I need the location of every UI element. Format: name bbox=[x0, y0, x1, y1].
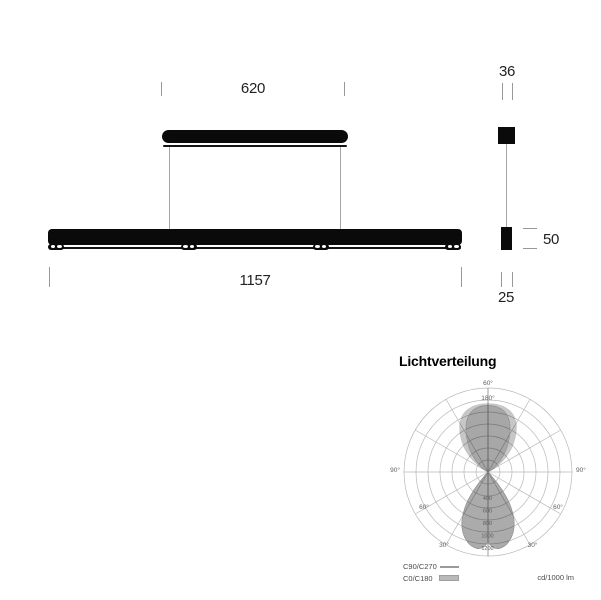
angle-label-60-left: 60° bbox=[419, 503, 429, 511]
dim-tick bbox=[461, 267, 462, 287]
angle-label-30-right: 30° bbox=[528, 541, 538, 549]
angle-label-top-outer: 60° bbox=[483, 379, 493, 387]
ring-label: 1000 bbox=[481, 534, 493, 540]
led-dot bbox=[315, 245, 320, 248]
led-spot bbox=[181, 244, 197, 251]
dim-tick bbox=[512, 272, 513, 288]
technical-drawing-page: 620 1157 36 50 25 Lichtverteilung bbox=[0, 0, 601, 600]
side-suspension-cable bbox=[506, 144, 507, 228]
dim-tick bbox=[161, 82, 162, 96]
dim-tick bbox=[344, 82, 345, 96]
dim-tick bbox=[523, 248, 537, 249]
dim-tick bbox=[501, 272, 502, 288]
angle-label-90-left: 90° bbox=[390, 466, 400, 474]
ring-label: 400 bbox=[483, 496, 492, 502]
led-dot bbox=[448, 245, 453, 248]
dim-label-canopy-width: 620 bbox=[223, 80, 283, 97]
dim-tick bbox=[512, 83, 513, 100]
dim-tick bbox=[49, 267, 50, 287]
ring-label: 800 bbox=[483, 521, 492, 527]
angle-label-180: 180° bbox=[481, 394, 495, 402]
led-dot bbox=[183, 245, 188, 248]
led-dot bbox=[322, 245, 327, 248]
legend-c0-label: C0/C180 bbox=[403, 574, 433, 583]
led-spot bbox=[445, 244, 461, 251]
fixture-bar-lower-edge bbox=[49, 247, 461, 249]
led-spot bbox=[48, 244, 64, 251]
side-canopy-square bbox=[498, 127, 515, 144]
suspension-cable-right bbox=[340, 147, 341, 229]
led-dot bbox=[190, 245, 195, 248]
canopy-bar bbox=[162, 130, 348, 143]
angle-label-30-left: 30° bbox=[439, 541, 449, 549]
angle-label-60-right: 60° bbox=[553, 503, 563, 511]
chart-title: Lichtverteilung bbox=[399, 353, 496, 369]
dim-label-bar-width: 1157 bbox=[220, 272, 290, 289]
ring-label: 600 bbox=[483, 509, 492, 515]
angle-label-90-right: 90° bbox=[576, 466, 586, 474]
suspension-cable-left bbox=[169, 147, 170, 229]
dim-tick bbox=[523, 228, 537, 229]
canopy-bar-lower-edge bbox=[163, 145, 347, 148]
led-dot bbox=[454, 245, 459, 248]
legend-c90-label: C90/C270 bbox=[403, 562, 437, 571]
side-profile-bar bbox=[501, 227, 513, 250]
legend-line-swatch bbox=[440, 566, 459, 568]
polar-chart: 400 600 800 1000 1200 60° 180° 90° 90° 6… bbox=[380, 372, 595, 582]
dim-label-side-top: 36 bbox=[487, 63, 527, 80]
ring-label: 1200 bbox=[481, 546, 493, 552]
legend-fill-swatch bbox=[439, 575, 459, 581]
led-spot bbox=[313, 244, 329, 251]
dim-label-side-bottom: 25 bbox=[486, 289, 526, 306]
led-dot bbox=[51, 245, 56, 248]
led-dot bbox=[57, 245, 62, 248]
dim-tick bbox=[502, 83, 503, 100]
dim-label-side-height: 50 bbox=[543, 231, 573, 248]
fixture-bar bbox=[48, 229, 462, 245]
unit-label: cd/1000 lm bbox=[518, 573, 574, 582]
